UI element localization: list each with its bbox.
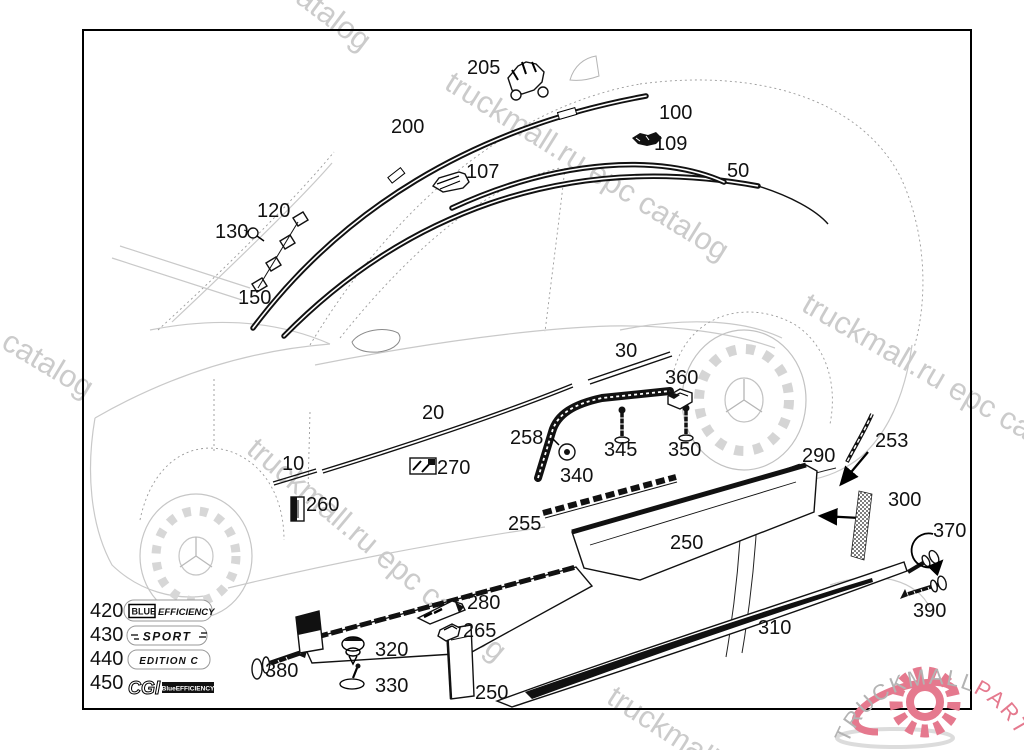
part-label-150: 150	[238, 287, 271, 309]
part-200-roof-strip	[253, 96, 646, 328]
part-label-107: 107	[466, 161, 499, 183]
part-label-345: 345	[604, 439, 637, 461]
wiper-arms	[112, 246, 250, 300]
badges: BLUE EFFICIENCY SPORT EDITION C CGI Blue…	[124, 600, 216, 698]
part-label-310: 310	[758, 617, 791, 639]
part-label-320: 320	[375, 639, 408, 661]
badge-edition-c: EDITION C	[128, 650, 210, 669]
part-label-255: 255	[508, 513, 541, 535]
part-390-rivet	[900, 575, 948, 599]
part-120-clips	[252, 212, 308, 292]
part-345-screw	[615, 407, 629, 444]
part-label-450: 450	[90, 672, 123, 694]
leader-arrow-253b	[822, 516, 860, 518]
front-wheel	[140, 494, 252, 618]
badge-450-text-right: BlueEFFICIENCY	[162, 686, 215, 693]
part-label-50: 50	[727, 160, 749, 182]
part-205-clip	[508, 62, 548, 100]
part-label-360: 360	[665, 367, 698, 389]
part-label-390: 390	[913, 600, 946, 622]
part-label-350: 350	[668, 439, 701, 461]
part-330-grommet	[340, 664, 364, 690]
part-270-clip	[410, 458, 436, 474]
part-label-250: 250	[670, 532, 703, 554]
watermark-text-2: truckmall.ru epc catalog	[0, 206, 100, 405]
badge-440-text: EDITION C	[139, 656, 199, 667]
badge-cgi: CGI BlueEFFICIENCY	[128, 678, 215, 698]
part-label-30: 30	[615, 340, 637, 362]
part-label-300: 300	[888, 489, 921, 511]
part-label-200: 200	[391, 116, 424, 138]
part-label-440: 440	[90, 648, 123, 670]
part-label-270: 270	[437, 457, 470, 479]
part-label-258: 258	[510, 427, 543, 449]
part-label-109: 109	[654, 133, 687, 155]
badge-sport: SPORT	[127, 626, 207, 645]
part-label-205: 205	[467, 57, 500, 79]
part-107-clip	[433, 172, 469, 192]
badge-420-text-left: BLUE	[132, 607, 157, 617]
part-100-drip-strip	[284, 176, 828, 336]
badge-450-text-left: CGI	[128, 678, 161, 698]
part-label-10: 10	[282, 453, 304, 475]
part-250-rocker-panel	[572, 465, 817, 580]
part-label-260: 260	[306, 494, 339, 516]
badge-420-text-right: EFFICIENCY	[158, 607, 216, 618]
badge-blueefficiency: BLUE EFFICIENCY	[124, 600, 216, 621]
part-300-stipple-strip	[851, 491, 872, 560]
part-350-screw	[679, 405, 693, 442]
parts-diagram-page: truckmall.ru epc catalogtruckmall.ru epc…	[0, 0, 1024, 750]
part-label-120: 120	[257, 200, 290, 222]
part-340-grommet	[553, 439, 575, 460]
part-label-330: 330	[375, 675, 408, 697]
antenna-fin-outline	[570, 56, 599, 80]
part-258-bpillar-strip	[538, 391, 670, 478]
parts-diagram: truckmall.ru epc catalogtruckmall.ru epc…	[0, 0, 1024, 750]
watermark-text-0: truckmall.ru epc catalog	[96, 0, 379, 58]
trim-parts	[253, 96, 907, 707]
part-label-430: 430	[90, 624, 123, 646]
part-label-253: 253	[875, 430, 908, 452]
part-label-20: 20	[422, 402, 444, 424]
badge-430-text: SPORT	[143, 630, 192, 644]
part-label-280: 280	[467, 592, 500, 614]
part-label-290: 290	[802, 445, 835, 467]
part-label-380: 380	[265, 660, 298, 682]
part-260-clip	[291, 497, 304, 521]
part-label-130: 130	[215, 221, 248, 243]
part-label-100: 100	[659, 102, 692, 124]
part-label-250b: 250	[475, 682, 508, 704]
part-label-370: 370	[933, 520, 966, 542]
part-label-420: 420	[90, 600, 123, 622]
part-label-265: 265	[463, 620, 496, 642]
part-label-340: 340	[560, 465, 593, 487]
door-mirror-outline	[352, 330, 400, 353]
